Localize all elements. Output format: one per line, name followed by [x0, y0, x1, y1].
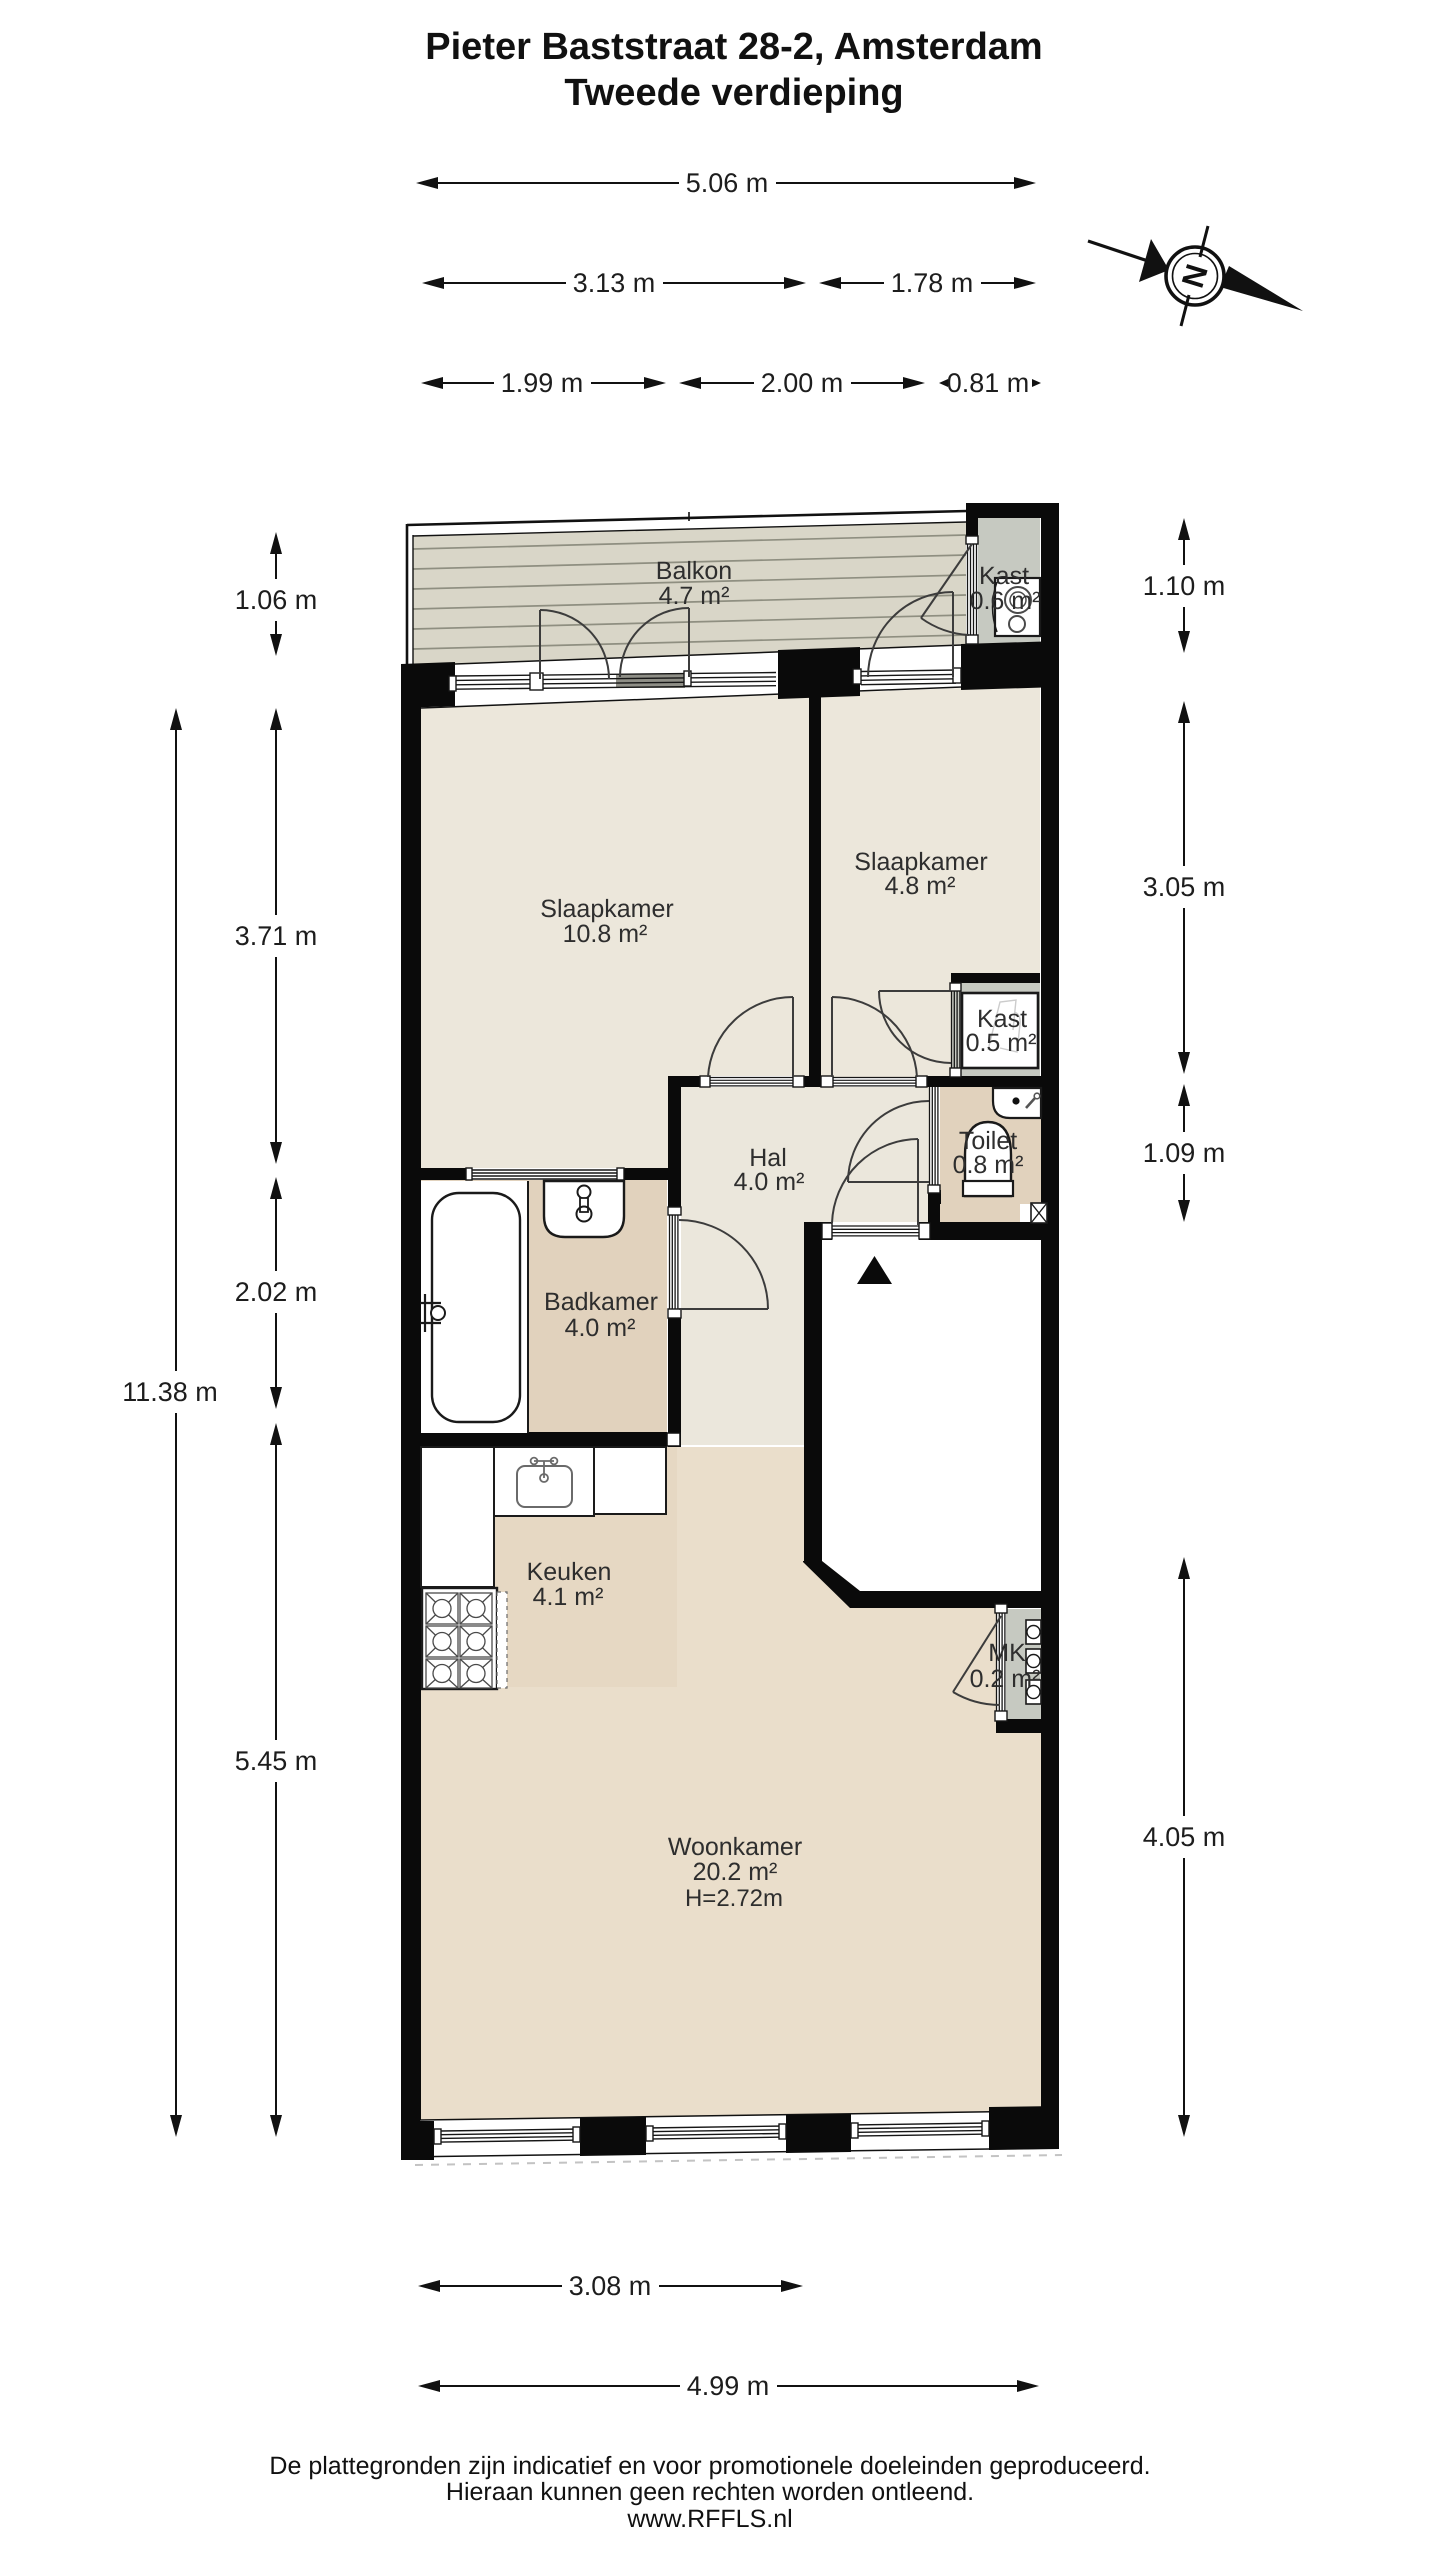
svg-text:4.7 m²: 4.7 m²: [659, 582, 730, 610]
svg-text:Kast: Kast: [979, 562, 1029, 590]
svg-text:2.00 m: 2.00 m: [761, 368, 844, 398]
svg-text:Slaapkamer: Slaapkamer: [540, 895, 673, 923]
svg-text:1.99 m: 1.99 m: [501, 368, 584, 398]
svg-text:3.71 m: 3.71 m: [235, 921, 318, 951]
svg-text:Hieraan kunnen geen rechten wo: Hieraan kunnen geen rechten worden ontle…: [446, 2478, 974, 2506]
svg-text:Keuken: Keuken: [527, 1558, 612, 1586]
svg-text:2.02 m: 2.02 m: [235, 1277, 318, 1307]
svg-text:4.0 m²: 4.0 m²: [565, 1314, 636, 1342]
svg-text:De plattegronden zijn indicati: De plattegronden zijn indicatief en voor…: [269, 2452, 1150, 2480]
svg-text:0.8 m²: 0.8 m²: [953, 1151, 1024, 1179]
svg-text:0.6 m²: 0.6 m²: [970, 587, 1041, 615]
svg-text:0.2 m²: 0.2 m²: [970, 1665, 1041, 1693]
svg-text:3.05 m: 3.05 m: [1143, 872, 1226, 902]
svg-text:Woonkamer: Woonkamer: [668, 1833, 802, 1861]
svg-text:MK: MK: [988, 1639, 1026, 1667]
svg-text:3.08 m: 3.08 m: [569, 2271, 652, 2301]
svg-text:3.13 m: 3.13 m: [573, 268, 656, 298]
svg-text:5.45 m: 5.45 m: [235, 1746, 318, 1776]
svg-text:4.1 m²: 4.1 m²: [533, 1583, 604, 1611]
svg-text:11.38 m: 11.38 m: [122, 1377, 218, 1407]
svg-text:Tweede verdieping: Tweede verdieping: [564, 72, 903, 114]
svg-text:www.RFFLS.nl: www.RFFLS.nl: [626, 2505, 792, 2533]
svg-text:1.78 m: 1.78 m: [891, 268, 974, 298]
svg-text:1.06 m: 1.06 m: [235, 585, 318, 615]
svg-text:4.0 m²: 4.0 m²: [734, 1168, 805, 1196]
svg-text:Balkon: Balkon: [656, 557, 732, 585]
svg-text:1.10 m: 1.10 m: [1143, 571, 1226, 601]
svg-text:4.05 m: 4.05 m: [1143, 1822, 1226, 1852]
svg-text:10.8 m²: 10.8 m²: [563, 920, 648, 948]
svg-text:H=2.72m: H=2.72m: [685, 1885, 783, 1912]
svg-text:0.5 m²: 0.5 m²: [966, 1029, 1037, 1057]
svg-text:4.8 m²: 4.8 m²: [885, 872, 956, 900]
svg-text:Badkamer: Badkamer: [544, 1288, 658, 1316]
svg-text:4.99 m: 4.99 m: [687, 2371, 770, 2401]
svg-text:0.81 m: 0.81 m: [947, 368, 1030, 398]
svg-text:Pieter Baststraat 28-2, Amster: Pieter Baststraat 28-2, Amsterdam: [425, 26, 1042, 68]
svg-text:5.06 m: 5.06 m: [686, 168, 769, 198]
svg-text:20.2 m²: 20.2 m²: [693, 1858, 778, 1886]
svg-text:1.09 m: 1.09 m: [1143, 1138, 1226, 1168]
